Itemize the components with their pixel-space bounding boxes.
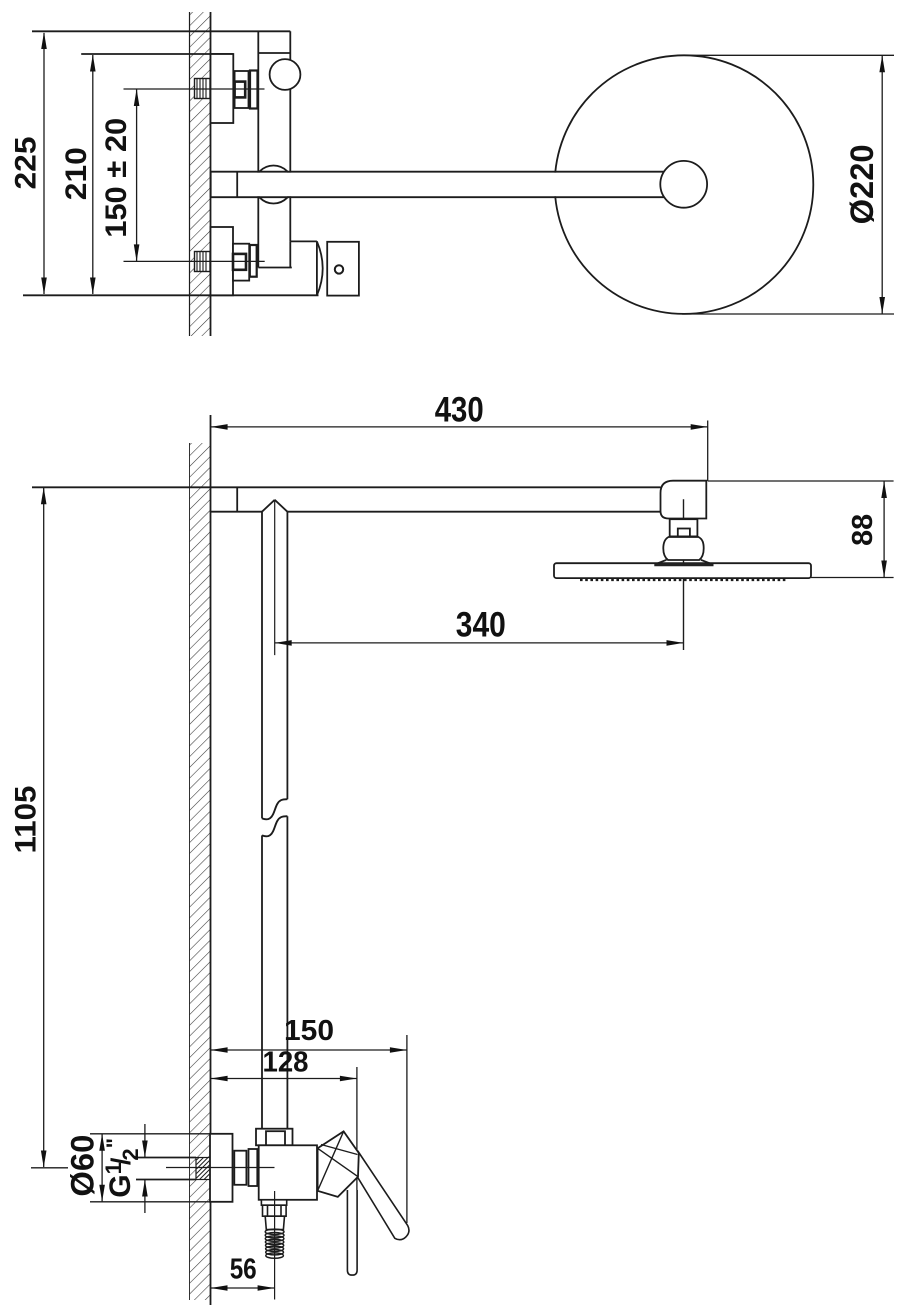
svg-text:210: 210 xyxy=(60,147,93,200)
svg-text:128: 128 xyxy=(263,1047,309,1079)
svg-text:56: 56 xyxy=(230,1254,257,1286)
svg-text:Ø220: Ø220 xyxy=(844,144,880,224)
svg-text:225: 225 xyxy=(10,137,43,190)
svg-text:Ø60: Ø60 xyxy=(65,1135,101,1197)
svg-text:150 ± 20: 150 ± 20 xyxy=(100,118,133,238)
svg-text:430: 430 xyxy=(435,391,484,430)
svg-text:G1/2": G1/2" xyxy=(101,1138,143,1198)
svg-text:150: 150 xyxy=(284,1015,334,1047)
svg-text:340: 340 xyxy=(456,605,506,644)
svg-text:88: 88 xyxy=(847,514,879,546)
svg-text:1105: 1105 xyxy=(10,786,43,854)
